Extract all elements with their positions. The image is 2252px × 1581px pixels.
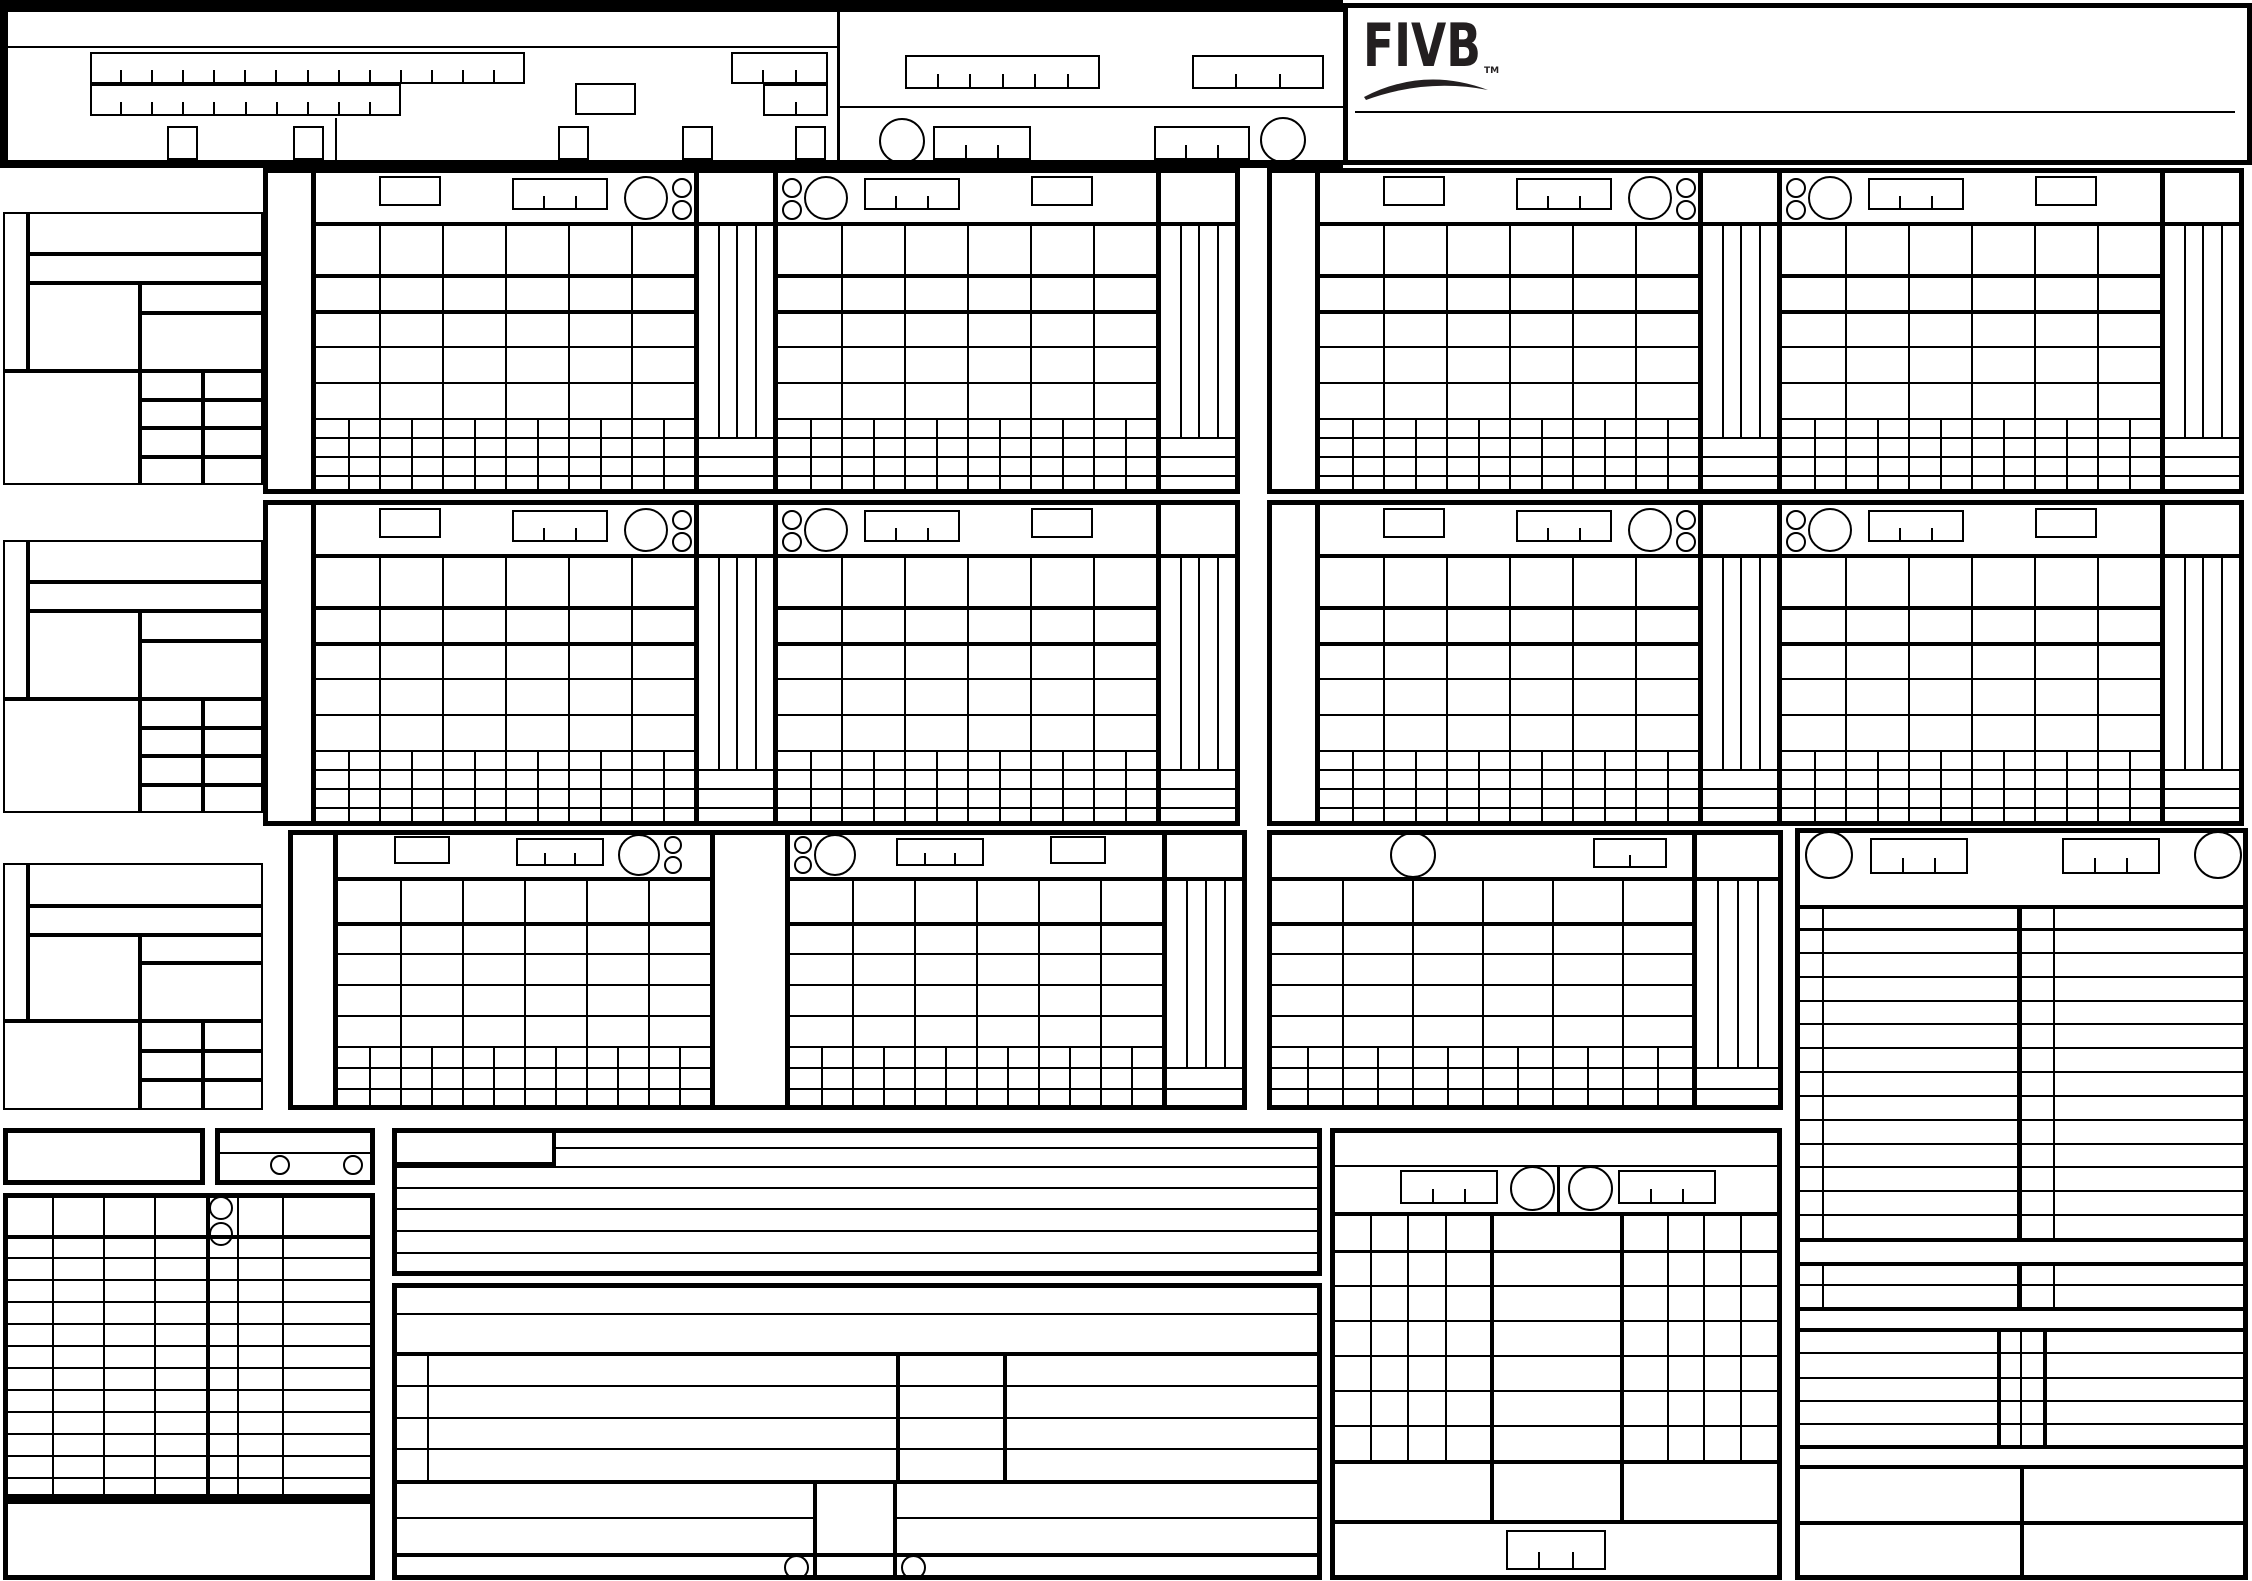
comb-tick: [244, 70, 246, 82]
set-5-receive-circle: [664, 856, 682, 874]
set-5-tally-col-rule: [555, 1046, 557, 1110]
set-1-receive-circle: [782, 200, 802, 220]
comb-tick: [762, 70, 764, 82]
officials-col-divider: [2043, 1328, 2047, 1445]
set-1-serve-circle: [782, 178, 802, 198]
approval-row-rule: [392, 1448, 1322, 1450]
set-2-col-rule: [1446, 222, 1448, 418]
set-4-tally-col-rule: [1814, 750, 1816, 826]
set-1-team-name-box: [1031, 176, 1093, 206]
set-3-tally-col-rule: [631, 750, 633, 826]
sanctions-team-circle-a: [209, 1196, 233, 1220]
set-3-tally-col-rule: [1030, 750, 1032, 826]
hall-box: [575, 83, 636, 115]
set-2-tally-col-rule: [1635, 418, 1637, 494]
side-3-time-cell: [203, 1021, 263, 1051]
comb-tick: [795, 70, 797, 82]
set-1-tally-col-rule: [810, 418, 812, 494]
sanctions-col-rule: [103, 1193, 105, 1499]
sanctions-col-rule: [154, 1193, 156, 1499]
remarks-line: [392, 1230, 1322, 1232]
set-2-tally-col-rule: [1509, 418, 1511, 494]
set-4-tally-col-rule: [1940, 750, 1942, 826]
side-3-set-label-cell: [3, 863, 28, 1021]
set-5-team-name-box: [394, 836, 450, 864]
set-3-divider: [773, 500, 778, 826]
comb-tick: [431, 70, 433, 82]
set-3-tally-col-rule: [505, 750, 507, 826]
approval-rule: [392, 1313, 1322, 1315]
results-team-b-circle: [1568, 1166, 1613, 1211]
set-5-receive-circle: [794, 856, 812, 874]
set-1-tally-col-rule: [631, 418, 633, 494]
set-4-points-strip-rule: [2221, 554, 2223, 769]
side-1-time-cell: [140, 371, 203, 400]
set-4-tally-col-rule: [2066, 750, 2068, 826]
category-checkbox: [167, 126, 198, 160]
set-1-tally-col-rule: [411, 418, 413, 494]
comb-tick: [120, 102, 122, 114]
comb-tick: [544, 853, 546, 864]
side-3-time-cell: [203, 1051, 263, 1080]
set-5-serve-circle: [794, 836, 812, 854]
set-4-team-name-box: [1383, 508, 1445, 538]
set-5-tally-col-rule: [1069, 1046, 1071, 1110]
set-1-col-rule: [379, 222, 381, 418]
set-1-tally-col-rule: [663, 418, 665, 494]
comb-tick: [1650, 1189, 1652, 1202]
roster-rule: [1795, 1445, 2248, 1449]
set-1-team-letter-circle: [804, 176, 848, 220]
set-5-col-rule: [914, 877, 916, 1046]
comb-tick: [1579, 196, 1581, 208]
set-2-tally-col-rule: [1604, 418, 1606, 494]
results-row-rule: [1330, 1390, 1782, 1392]
set-1-tally-col-rule: [936, 418, 938, 494]
set-1-tally-col-rule: [841, 418, 843, 494]
set-4-tally-col-rule: [1478, 750, 1480, 826]
set-5-serve-circle: [664, 836, 682, 854]
comb-tick: [1931, 528, 1933, 540]
side-3-remark-cell: [140, 963, 263, 1021]
comb-tick: [543, 528, 545, 540]
comb-tick: [1217, 145, 1219, 158]
side-2-time-cell: [203, 699, 263, 728]
sanctions-remarks-box: [3, 1499, 375, 1580]
set-3-tally-rule: [316, 807, 1235, 809]
side-3-duration-label-cell: [3, 1021, 140, 1110]
signature-col-divider: [2020, 1465, 2024, 1580]
results-row-rule: [1330, 1355, 1782, 1357]
results-row-rule: [1330, 1425, 1782, 1427]
set-2-tally-col-rule: [1940, 418, 1942, 494]
side-2-time-cell: [140, 756, 203, 785]
improper-request-circle-b: [343, 1155, 363, 1175]
set-1-tally-col-rule: [967, 418, 969, 494]
set-1-divider: [773, 168, 778, 494]
comb-tick: [1002, 74, 1004, 87]
set-3-tally-col-rule: [873, 750, 875, 826]
set-4-col-rule: [1572, 554, 1574, 750]
set-3-tally-col-rule: [1093, 750, 1095, 826]
set-1-tally-rule: [316, 437, 1235, 439]
set-1-divider: [694, 168, 699, 494]
set-1-tally-col-rule: [904, 418, 906, 494]
remarks-line: [556, 1147, 1322, 1149]
set-2-strip-border: [1315, 168, 1320, 494]
sanctions-row-rule: [3, 1345, 375, 1347]
set-4-col-rule: [1446, 554, 1448, 750]
approval-row-rule: [897, 1517, 1322, 1519]
set-3-tally-col-rule: [936, 750, 938, 826]
officials-col-rule: [2020, 1328, 2022, 1445]
side-3-team-a-cell: [28, 863, 263, 906]
category-checkbox: [293, 126, 324, 160]
side-1-time-cell: [203, 428, 263, 457]
set-4-team-letter-circle: [1628, 508, 1672, 552]
comb-tick: [924, 853, 926, 864]
side-3-time-cell: [140, 1051, 203, 1080]
sanctions-row-rule: [3, 1477, 375, 1479]
side-2-time-cell: [140, 728, 203, 756]
results-col-rule: [1445, 1212, 1447, 1460]
category-checkbox: [558, 126, 589, 160]
side-1-time-cell: [203, 371, 263, 400]
approval-row-rule: [392, 1417, 1322, 1419]
sanctions-row-rule: [3, 1455, 375, 1457]
set-4-tally-col-rule: [1383, 750, 1385, 826]
comb-tick: [1931, 196, 1933, 208]
approval-col-divider: [1003, 1352, 1007, 1480]
set-1-col-rule: [841, 222, 843, 418]
approval-row-rule: [392, 1385, 1322, 1387]
set-4-points-strip-rule: [1722, 554, 1724, 769]
results-team-b-field: [1618, 1170, 1716, 1204]
side-3-time-cell: [140, 1080, 203, 1110]
set-1-team-letter-circle: [624, 176, 668, 220]
set-5-col-rule: [648, 877, 650, 1046]
comb-tick: [182, 102, 184, 114]
comb-tick: [997, 145, 999, 158]
set-4-tally-col-rule: [1845, 750, 1847, 826]
set-5-change-col-rule: [1482, 877, 1484, 1046]
improper-request-circle-a: [270, 1155, 290, 1175]
approval-mid-divider: [813, 1480, 817, 1580]
set-5-change-points-strip-rule: [1737, 877, 1739, 1067]
set-2-tally-col-rule: [1971, 418, 1973, 494]
comb-tick: [954, 853, 956, 864]
set-4-receive-circle: [1676, 532, 1696, 552]
set-5-change-col-rule: [1552, 877, 1554, 1046]
set-2-points-strip-rule: [1740, 222, 1742, 437]
set-4-col-rule: [1908, 554, 1910, 750]
set-2-tally-col-rule: [1541, 418, 1543, 494]
set-1-col-rule: [568, 222, 570, 418]
set-2-tally-col-rule: [2034, 418, 2036, 494]
set-3-team-letter-circle: [624, 508, 668, 552]
set-5-tally-col-rule: [852, 1046, 854, 1110]
sanctions-row-rule: [3, 1411, 375, 1413]
set-3-col-rule: [1093, 554, 1095, 750]
side-1-set-label-cell: [3, 212, 28, 371]
set-3-tally-col-rule: [810, 750, 812, 826]
set-2-col-rule: [1383, 222, 1385, 418]
comb-tick: [575, 528, 577, 540]
set-2-receive-circle: [1786, 200, 1806, 220]
roster-mid-divider: [2017, 905, 2022, 1238]
remarks-line: [392, 1166, 1322, 1168]
set-1-tally-col-rule: [600, 418, 602, 494]
set-2-col-rule: [1509, 222, 1511, 418]
comb-tick: [369, 102, 371, 114]
set-4-team-letter-circle: [1808, 508, 1852, 552]
set-4-receive-circle: [1786, 532, 1806, 552]
set-5-divider: [710, 830, 715, 1110]
set-2-divider: [1777, 168, 1782, 494]
set-5-change-tally-col-rule: [1447, 1046, 1449, 1110]
set-4-tally-col-rule: [1415, 750, 1417, 826]
comb-tick: [1067, 74, 1069, 87]
captain-circle-b: [901, 1555, 926, 1580]
set-5-tally-col-rule: [369, 1046, 371, 1110]
set-1-tally-col-rule: [474, 418, 476, 494]
header-bottom-bar: [0, 160, 1343, 168]
team-b-header-circle: [1260, 117, 1306, 163]
set-5-change-col-rule: [1622, 877, 1624, 1046]
set-3-serve-circle: [672, 510, 692, 530]
set-4-tally-col-rule: [1667, 750, 1669, 826]
set-1-start-time-field: [512, 178, 608, 210]
set-3-tally-col-rule: [442, 750, 444, 826]
set-2-col-rule: [1845, 222, 1847, 418]
comb-tick: [937, 74, 939, 87]
side-1-time-cell: [203, 457, 263, 485]
set-5-col-rule: [976, 877, 978, 1046]
set-2-tally-col-rule: [1877, 418, 1879, 494]
set-2-team-name-box: [2035, 176, 2097, 206]
comb-tick: [1902, 858, 1904, 872]
comb-tick: [276, 102, 278, 114]
set-3-tally-col-rule: [537, 750, 539, 826]
page-left-edge: [0, 0, 8, 168]
set-4-col-rule: [1845, 554, 1847, 750]
set-4-points-strip-rule: [1759, 554, 1761, 769]
set-2-start-time-field: [1868, 178, 1964, 210]
fivb-logo: FIVB TM: [1360, 10, 1540, 110]
set-3-divider: [1156, 500, 1161, 826]
comb-tick: [1629, 855, 1631, 867]
set-2-tally-col-rule: [1667, 418, 1669, 494]
set-1-tally-col-rule: [1030, 418, 1032, 494]
set-1-receive-circle: [672, 200, 692, 220]
results-divider: [1557, 1165, 1560, 1212]
set-5-tally-col-rule: [462, 1046, 464, 1110]
side-1-time-cell: [203, 400, 263, 428]
set-5-tally-col-rule: [976, 1046, 978, 1110]
fivb-swoosh: [1364, 80, 1488, 100]
set-4-tally-col-rule: [2034, 750, 2036, 826]
set-4-tally-col-rule: [1877, 750, 1879, 826]
set-3-tally-col-rule: [411, 750, 413, 826]
set-5-tally-col-rule: [1007, 1046, 1009, 1110]
set-3-serve-circle: [782, 510, 802, 530]
comb-tick: [462, 70, 464, 82]
category-checkbox: [795, 126, 826, 160]
set-4-team-name-box: [2035, 508, 2097, 538]
set-2-tally-col-rule: [1446, 418, 1448, 494]
set-2-tally-col-rule: [1415, 418, 1417, 494]
set-3-col-rule: [841, 554, 843, 750]
sanctions-row-rule: [3, 1323, 375, 1325]
captain-circle-a: [784, 1555, 809, 1580]
set-4-tally-col-rule: [1352, 750, 1354, 826]
header-top-bar: [0, 0, 1343, 12]
header-rule: [335, 118, 337, 162]
comb-tick: [2126, 858, 2128, 872]
set-5-team-letter-circle: [814, 834, 856, 876]
side-3-team-b-cell: [28, 906, 263, 935]
roster-rule: [1795, 1307, 2248, 1311]
set-3-tally-col-rule: [1125, 750, 1127, 826]
officials-col-divider: [1997, 1328, 2001, 1445]
set-2-tally-col-rule: [1352, 418, 1354, 494]
results-team-a-field: [1400, 1170, 1498, 1204]
comb-tick: [1034, 74, 1036, 87]
set-1-tally-col-rule: [1125, 418, 1127, 494]
side-1-time-cell: [140, 400, 203, 428]
set-5-points-strip-rule: [1224, 877, 1226, 1067]
remarks-line: [392, 1187, 1322, 1189]
sanctions-team-circle-b: [209, 1222, 233, 1246]
set-1-tally-rule: [316, 475, 1235, 477]
comb-tick: [213, 70, 215, 82]
set-3-col-rule: [505, 554, 507, 750]
set-4-tally-col-rule: [1446, 750, 1448, 826]
set-5-tally-col-rule: [524, 1046, 526, 1110]
set-3-tally-col-rule: [904, 750, 906, 826]
set-2-tally-col-rule: [2097, 418, 2099, 494]
results-rule: [1330, 1165, 1782, 1167]
side-3-court-cell: [28, 935, 140, 1021]
header-divider: [837, 12, 840, 160]
side-3-coin-toss-cell: [140, 935, 263, 963]
comb-tick: [120, 70, 122, 82]
set-3-divider: [694, 500, 699, 826]
set-5-change-tally-col-rule: [1342, 1046, 1344, 1110]
category-checkbox: [682, 126, 713, 160]
side-1-court-cell: [28, 283, 140, 371]
libero-row-rule: [1795, 1284, 2248, 1286]
set-4-start-time-field: [1516, 510, 1612, 542]
set-3-tally-col-rule: [600, 750, 602, 826]
comb-tick: [965, 145, 967, 158]
comb-tick: [338, 102, 340, 114]
set-4-tally-col-rule: [2003, 750, 2005, 826]
set-5-points-strip-rule: [1186, 877, 1188, 1067]
set-2-points-strip-rule: [1759, 222, 1761, 437]
side-2-duration-label-cell: [3, 699, 140, 813]
set-5-change-tally-col-rule: [1657, 1046, 1659, 1110]
set-3-tally-col-rule: [841, 750, 843, 826]
set-1-tally-col-rule: [348, 418, 350, 494]
set-4-tally-col-rule: [1635, 750, 1637, 826]
set-5-tally-col-rule: [648, 1046, 650, 1110]
set-5-change-tally-rule: [1272, 1067, 1778, 1069]
results-col-divider: [1490, 1212, 1494, 1520]
set-2-tally-col-rule: [1908, 418, 1910, 494]
comb-tick: [895, 196, 897, 208]
side-2-time-cell: [140, 699, 203, 728]
side-1-time-cell: [140, 428, 203, 457]
set-1-points-strip-rule: [755, 222, 757, 437]
set-3-strip-border: [311, 500, 316, 826]
comb-tick: [182, 70, 184, 82]
sanctions-row-rule: [3, 1279, 375, 1281]
set-4-col-rule: [1635, 554, 1637, 750]
approval-mid-divider: [893, 1480, 897, 1580]
set-1-points-strip-rule: [736, 222, 738, 437]
side-2-remark-cell: [140, 641, 263, 699]
set-5-change-tally-col-rule: [1307, 1046, 1309, 1110]
results-row-rule: [1330, 1320, 1782, 1322]
set-2-divider: [2160, 168, 2165, 494]
side-2-coin-toss-cell: [140, 611, 263, 641]
set-5-change-header-rule: [1272, 877, 1778, 881]
set-4-start-time-field: [1868, 510, 1964, 542]
comb-tick: [275, 70, 277, 82]
approval-rule: [392, 1480, 1322, 1484]
set-4-divider: [1777, 500, 1782, 826]
set-2-points-strip-rule: [1722, 222, 1724, 437]
roster-rule: [1795, 1238, 2248, 1242]
comb-tick: [1279, 74, 1281, 87]
approval-rule: [392, 1553, 1322, 1557]
set-5-change-tally-col-rule: [1622, 1046, 1624, 1110]
comb-tick: [969, 74, 971, 87]
set-1-col-rule: [505, 222, 507, 418]
set-5-change-tally-col-rule: [1412, 1046, 1414, 1110]
set-5-points-strip-rule: [1205, 877, 1207, 1067]
side-2-time-cell: [140, 785, 203, 813]
team-a-header-circle: [879, 118, 925, 164]
set-3-points-strip-rule: [1180, 554, 1182, 769]
comb-tick: [2094, 858, 2096, 872]
set-4-col-rule: [1383, 554, 1385, 750]
side-1-team-a-cell: [28, 212, 263, 254]
set-3-points-strip-rule: [755, 554, 757, 769]
set-2-tally-rule: [1320, 456, 2239, 458]
comb-tick: [307, 102, 309, 114]
set-3-tally-col-rule: [663, 750, 665, 826]
approval-col-rule: [427, 1352, 429, 1480]
set-5-col-rule: [852, 877, 854, 1046]
set-5-change-tally-col-rule: [1552, 1046, 1554, 1110]
set-4-serve-circle: [1676, 510, 1696, 530]
set-3-col-rule: [631, 554, 633, 750]
set-5-tally-rule: [1167, 1088, 1242, 1090]
set-5-change-points-strip-rule: [1717, 877, 1719, 1067]
set-5-tally-col-rule: [400, 1046, 402, 1110]
sanctions-row-rule: [3, 1367, 375, 1369]
approval-box: [392, 1283, 1322, 1580]
set-1-team-name-box: [379, 176, 441, 206]
set-3-col-rule: [904, 554, 906, 750]
set-4-points-strip-rule: [2202, 554, 2204, 769]
set-2-tally-col-rule: [1814, 418, 1816, 494]
set-1-col-rule: [1093, 222, 1095, 418]
set-3-tally-col-rule: [348, 750, 350, 826]
remarks-line: [392, 1208, 1322, 1210]
